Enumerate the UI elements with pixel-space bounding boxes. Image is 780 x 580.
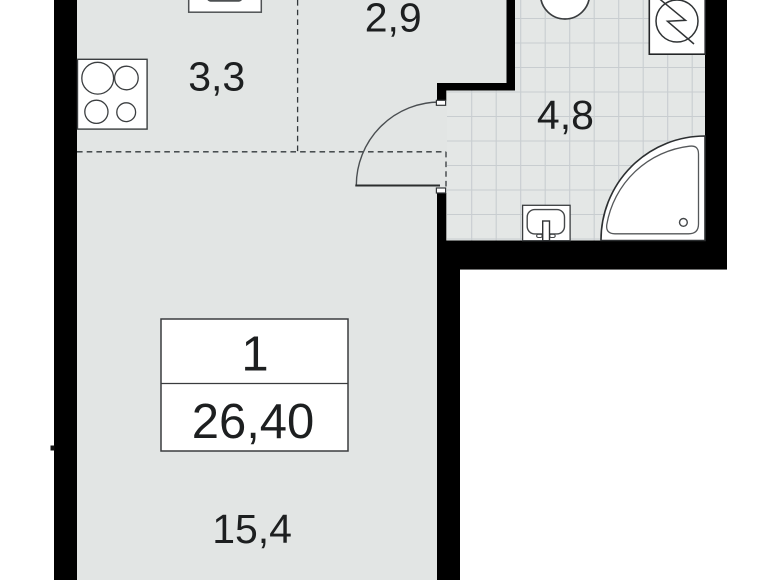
svg-text:2,9: 2,9: [365, 0, 422, 40]
svg-text:1: 1: [241, 328, 268, 382]
svg-text:3,3: 3,3: [188, 53, 245, 99]
svg-text:4,8: 4,8: [537, 92, 594, 138]
svg-text:26,40: 26,40: [192, 395, 315, 449]
svg-text:15,4: 15,4: [212, 506, 292, 552]
